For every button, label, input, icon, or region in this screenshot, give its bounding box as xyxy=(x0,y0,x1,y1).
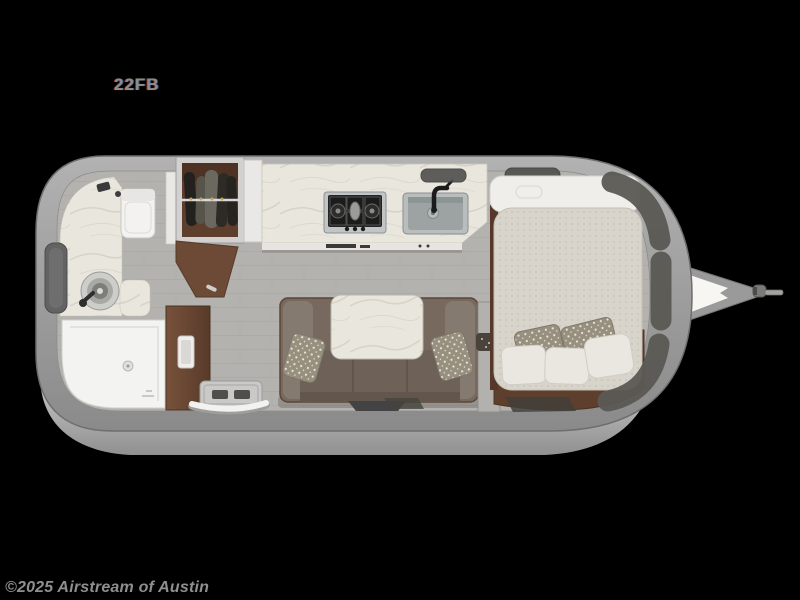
hitch-jack-rod xyxy=(765,290,783,295)
cooktop xyxy=(324,192,386,233)
bed-pillow-2 xyxy=(544,347,589,385)
toilet xyxy=(115,189,155,238)
watermark: ©2025 Airstream of Austin xyxy=(5,579,209,597)
floorplan-image xyxy=(0,0,800,600)
bathroom-mirror xyxy=(45,243,67,313)
floorplan-canvas: 22FB xyxy=(0,0,800,600)
cooktop-knobs xyxy=(345,227,349,231)
refrigerator-cabinet xyxy=(244,160,262,242)
floor-mat-2 xyxy=(384,398,424,409)
dinette xyxy=(278,295,482,411)
burner-center xyxy=(350,202,360,220)
dinette-table xyxy=(331,295,423,359)
hanging-clothes xyxy=(180,170,240,228)
bed-pillow-3 xyxy=(583,333,635,380)
roof-vent-1 xyxy=(421,169,466,182)
bed-pillow-1 xyxy=(501,345,547,385)
entry-step xyxy=(192,381,266,411)
shower xyxy=(62,320,165,408)
floor-mat-1 xyxy=(505,397,576,412)
